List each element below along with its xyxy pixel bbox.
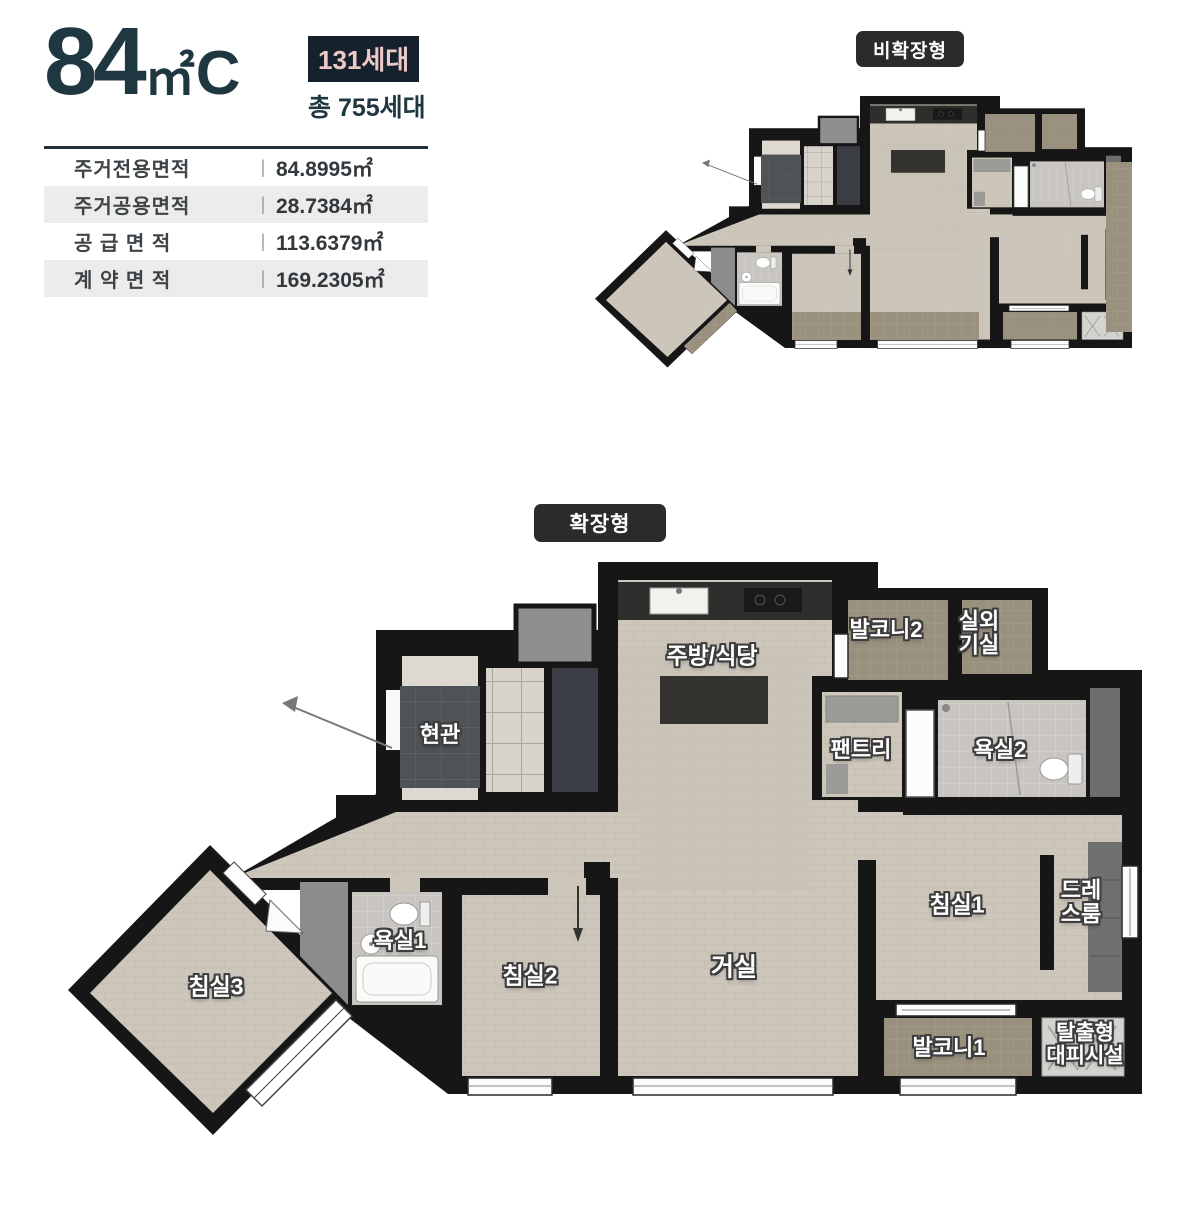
bedroom1-floor <box>876 815 1122 1000</box>
toilet <box>390 903 418 925</box>
floorplans-svg <box>0 0 1200 1213</box>
entry-step <box>402 788 478 800</box>
wall-stub-dressroom <box>1040 855 1054 970</box>
pantry-shelf <box>826 696 898 722</box>
nonexp-bedroom2-balcony <box>792 312 861 340</box>
nonexp-living-balcony <box>870 312 979 340</box>
stove <box>744 588 802 612</box>
toilet-tank <box>1068 754 1082 784</box>
pantry-shelf <box>826 764 848 794</box>
sink-drain <box>369 942 373 946</box>
toilet-tank <box>420 902 430 926</box>
dressroom-wardrobe <box>1088 842 1122 992</box>
utility-column <box>1090 688 1120 797</box>
faucet <box>676 588 682 594</box>
outdoor-unit-floor <box>962 600 1032 674</box>
lobby-core-block <box>516 606 594 664</box>
entry-arrow <box>282 696 298 712</box>
escape-shelter <box>1042 1018 1124 1076</box>
bedroom2-floor <box>462 895 600 1076</box>
balcony2-window <box>834 634 848 678</box>
balcony2-floor <box>848 600 948 680</box>
expanded-plan-geometry <box>68 562 1142 1135</box>
balcony1-floor <box>884 1018 1032 1076</box>
kitchen-island <box>660 676 768 724</box>
entry-closet <box>552 668 598 792</box>
bathroom2-door-panel <box>906 710 934 797</box>
bedroom3-floor <box>90 870 332 1113</box>
entry-tile-floor <box>400 686 480 788</box>
non-expanded-plan-geometry <box>595 96 1132 367</box>
entry-step <box>402 656 478 686</box>
bedroom3-door-wedge <box>266 900 303 933</box>
wall-stub-bedroom2 <box>584 862 610 895</box>
entry-door-opening <box>386 690 400 750</box>
bathroom2-floor <box>938 700 1086 797</box>
bathroom1-door-opening <box>390 878 420 892</box>
shoe-closet <box>486 668 544 792</box>
shower-head <box>942 704 950 712</box>
nonexp-side-balcony <box>1106 162 1132 332</box>
toilet <box>1040 758 1068 780</box>
